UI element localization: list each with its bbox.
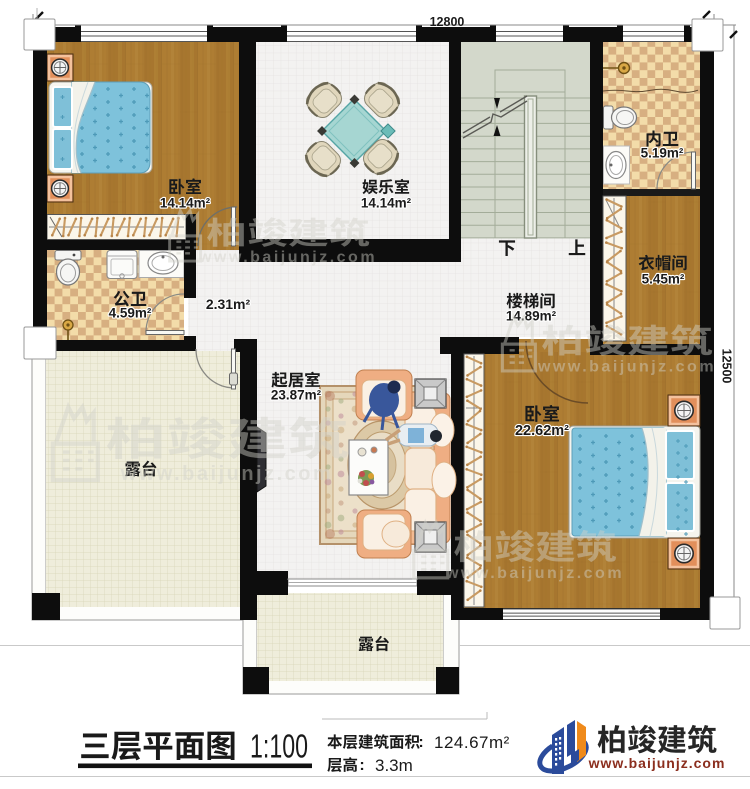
svg-text:22.62m²: 22.62m² <box>515 423 569 439</box>
svg-text:2.31m²: 2.31m² <box>206 296 251 312</box>
svg-text:www.baijunjz.com: www.baijunjz.com <box>120 463 334 485</box>
svg-text:www.baijunjz.com: www.baijunjz.com <box>537 358 716 375</box>
svg-text:14.14m²: 14.14m² <box>160 196 211 211</box>
svg-text:12500: 12500 <box>720 349 734 384</box>
svg-text:4.59m²: 4.59m² <box>109 306 152 321</box>
svg-text:124.67m²: 124.67m² <box>434 733 510 752</box>
svg-text::: : <box>418 734 423 751</box>
svg-text:12800: 12800 <box>430 15 465 29</box>
svg-text:1:100: 1:100 <box>250 728 308 765</box>
svg-text::: : <box>359 757 364 774</box>
svg-text:3.3m: 3.3m <box>375 756 413 775</box>
svg-text:www.baijunjz.com: www.baijunjz.com <box>198 249 377 266</box>
svg-text:www.baijunjz.com: www.baijunjz.com <box>588 755 726 771</box>
svg-text:www.baijunjz.com: www.baijunjz.com <box>445 565 624 582</box>
svg-text:23.87m²: 23.87m² <box>271 388 322 403</box>
svg-text:5.19m²: 5.19m² <box>641 146 684 161</box>
svg-text:14.14m²: 14.14m² <box>361 196 412 211</box>
svg-text:5.45m²: 5.45m² <box>642 272 685 287</box>
